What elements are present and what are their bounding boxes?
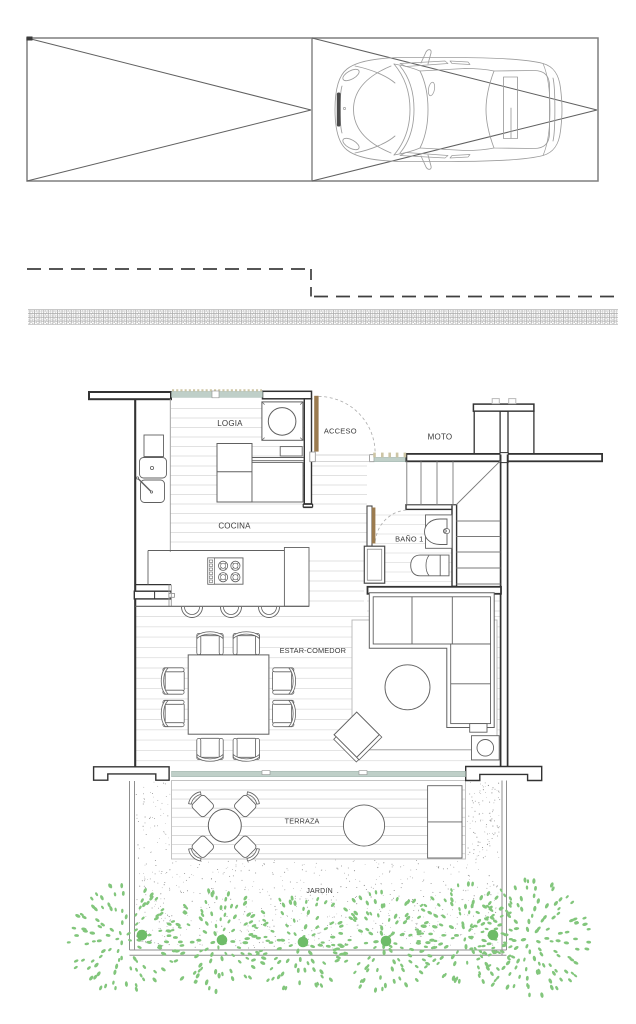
svg-text:COCINA: COCINA: [218, 521, 251, 530]
svg-text:TERRAZA: TERRAZA: [285, 817, 320, 826]
svg-text:ESTAR-COMEDOR: ESTAR-COMEDOR: [280, 646, 346, 655]
svg-text:JARDIN: JARDIN: [306, 888, 332, 895]
svg-text:ACCESO: ACCESO: [324, 427, 357, 436]
svg-text:BAÑO 1: BAÑO 1: [395, 534, 423, 543]
svg-text:MOTO: MOTO: [428, 432, 453, 441]
svg-text:LOGIA: LOGIA: [217, 419, 243, 428]
